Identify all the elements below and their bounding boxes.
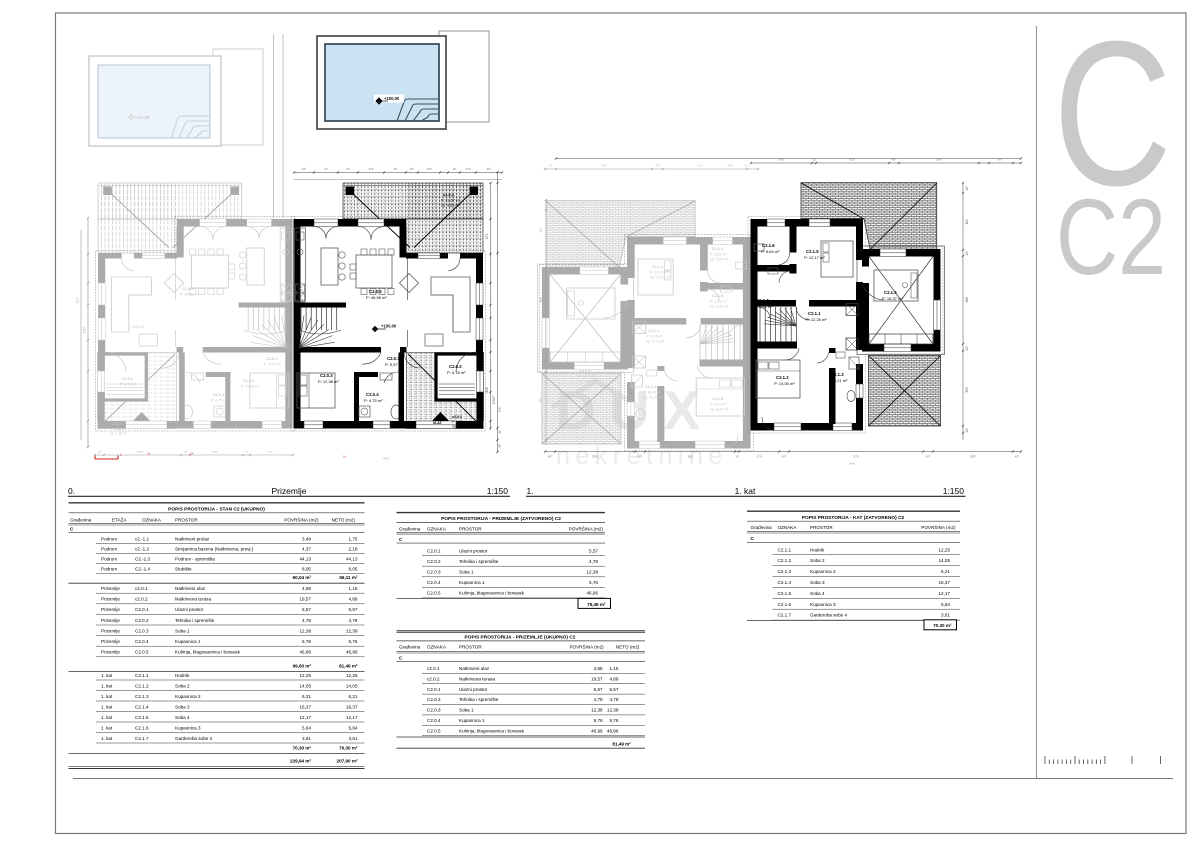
svg-text:1: 1 <box>120 453 122 457</box>
svg-text:5,64: 5,64 <box>941 602 950 607</box>
svg-text:117⁵: 117⁵ <box>76 296 80 303</box>
svg-text:c1.1.1: c1.1.1 <box>580 369 591 373</box>
svg-text:np: 5,64 m²: np: 5,64 m² <box>710 258 729 262</box>
svg-text:c2.0.1: c2.0.1 <box>135 586 148 591</box>
svg-text:Tehnika i spremište: Tehnika i spremište <box>459 697 499 702</box>
svg-text:C2.1.4: C2.1.4 <box>778 580 792 585</box>
svg-text:3,61: 3,61 <box>349 736 358 741</box>
svg-text:P: 3,61 m²: P: 3,61 m² <box>710 300 727 304</box>
svg-text:C1.1.1: C1.1.1 <box>648 329 659 333</box>
svg-text:46,96: 46,96 <box>587 591 599 596</box>
svg-text:826: 826 <box>485 387 489 393</box>
svg-text:+100,00: +100,00 <box>384 96 400 101</box>
svg-text:Soba 1: Soba 1 <box>175 628 190 633</box>
svg-text:Podrum: Podrum <box>101 536 117 541</box>
svg-text:207,90 m²: 207,90 m² <box>337 758 358 763</box>
svg-text:Tehnika i spremište: Tehnika i spremište <box>459 559 499 564</box>
svg-text:Prizemlje: Prizemlje <box>101 597 120 602</box>
svg-text:Prizemlje: Prizemlje <box>101 639 120 644</box>
svg-text:42⁵: 42⁵ <box>1015 455 1020 459</box>
svg-text:P: 16,42 m²: P: 16,42 m² <box>643 391 662 395</box>
svg-text:c2.0.2: c2.0.2 <box>427 676 440 681</box>
svg-text:12,38: 12,38 <box>587 569 599 574</box>
svg-text:P: 9,24 m²: P: 9,24 m² <box>646 335 663 339</box>
svg-text:Podrum: Podrum <box>101 546 117 551</box>
svg-text:81,49 m²: 81,49 m² <box>339 664 358 669</box>
svg-text:3,61: 3,61 <box>302 736 311 741</box>
svg-text:4,37: 4,37 <box>302 546 311 551</box>
svg-text:1. kat: 1. kat <box>101 704 113 709</box>
svg-text:c2.0.1: c2.0.1 <box>452 415 462 419</box>
svg-text:Natkrivena terasa: Natkrivena terasa <box>175 597 211 602</box>
svg-text:C2.1.5: C2.1.5 <box>806 249 819 254</box>
svg-text:229,94 m²: 229,94 m² <box>290 758 311 763</box>
svg-text:P: 4,58 m²: P: 4,58 m² <box>110 427 127 431</box>
svg-text:C2.0.5: C2.0.5 <box>427 728 441 733</box>
svg-text:OZNAKA: OZNAKA <box>427 526 447 531</box>
svg-text:C1.1.6: C1.1.6 <box>712 294 723 298</box>
svg-text:310: 310 <box>849 158 854 162</box>
svg-text:C2.0.1: C2.0.1 <box>427 687 441 692</box>
svg-text:90: 90 <box>498 430 502 434</box>
svg-text:Kupaonica 1: Kupaonica 1 <box>459 580 485 585</box>
svg-text:P: 16,37 m²: P: 16,37 m² <box>882 296 903 301</box>
svg-text:C2.1.3: C2.1.3 <box>831 372 844 377</box>
svg-text:np: 3,96 m²: np: 3,96 m² <box>578 380 597 384</box>
svg-text:Prizemlje: Prizemlje <box>101 650 120 655</box>
svg-text:+100,00: +100,00 <box>381 324 397 329</box>
svg-text:C2.0.5: C2.0.5 <box>135 650 149 655</box>
svg-text:Hodnik: Hodnik <box>810 547 825 552</box>
svg-text:C2.0.2: C2.0.2 <box>135 618 149 623</box>
svg-text:12,38: 12,38 <box>346 628 358 633</box>
svg-text:Natkriveni ulaz: Natkriveni ulaz <box>175 586 206 591</box>
svg-text:ETAŽA: ETAŽA <box>112 515 127 522</box>
svg-text:C2.0.4: C2.0.4 <box>427 580 441 585</box>
svg-text:Stubište: Stubište <box>175 566 192 571</box>
svg-text:5,64: 5,64 <box>302 725 311 730</box>
svg-text:np: 1,15 m²: np: 1,15 m² <box>110 432 128 436</box>
svg-text:1,15: 1,15 <box>349 586 358 591</box>
svg-text:PROSTOR: PROSTOR <box>175 517 198 522</box>
svg-text:C1.0.1: C1.0.1 <box>266 357 277 361</box>
svg-text:Soba 1: Soba 1 <box>459 708 474 713</box>
svg-text:c1.0.1: c1.0.1 <box>112 422 122 426</box>
svg-text:42⁵: 42⁵ <box>98 450 103 454</box>
svg-text:3,61: 3,61 <box>941 613 950 618</box>
svg-text:P: 5,57 m²: P: 5,57 m² <box>264 363 281 367</box>
svg-text:56,11 m²: 56,11 m² <box>339 575 358 580</box>
svg-text:6,21: 6,21 <box>302 694 311 699</box>
svg-text:P: 5,57 m²: P: 5,57 m² <box>385 362 404 367</box>
svg-text:POPIS PROSTORIJA - KAT (ZATVO: POPIS PROSTORIJA - KAT (ZATVORENO) C2 <box>802 515 905 521</box>
svg-text:C2.1.6: C2.1.6 <box>762 243 775 248</box>
svg-text:C2.1.7: C2.1.7 <box>135 736 149 741</box>
svg-text:C1.1.3: C1.1.3 <box>712 247 723 251</box>
svg-text:C2.1.5: C2.1.5 <box>778 591 792 596</box>
svg-text:AAA: AAA <box>849 462 855 466</box>
svg-text:Prizemlje: Prizemlje <box>101 586 120 591</box>
svg-text:C1.0.5: C1.0.5 <box>182 287 193 291</box>
svg-text:245: 245 <box>727 164 732 168</box>
svg-text:POPIS PROSTORIJA - PRIZEMLJE: POPIS PROSTORIJA - PRIZEMLJE (UKUPNO) C2 <box>465 634 576 640</box>
svg-text:P: 15,79 m²: P: 15,79 m² <box>578 375 597 379</box>
svg-text:46,96: 46,96 <box>607 728 619 733</box>
svg-text:0.: 0. <box>68 486 75 496</box>
svg-text:Kupaonica 1: Kupaonica 1 <box>175 639 201 644</box>
svg-text:np: 1,15 m²: np: 1,15 m² <box>452 425 470 429</box>
svg-text:120: 120 <box>498 407 502 412</box>
svg-text:C2.1.4: C2.1.4 <box>135 704 149 709</box>
svg-text:4,78: 4,78 <box>349 618 358 623</box>
svg-text:12,38: 12,38 <box>591 708 603 713</box>
svg-text:Podrum: Podrum <box>101 566 117 571</box>
svg-text:Ulazni prostor: Ulazni prostor <box>459 548 488 553</box>
svg-text:P: 12,17 m²: P: 12,17 m² <box>804 255 825 260</box>
svg-text:np: 16,40 m²: np: 16,40 m² <box>643 396 664 400</box>
svg-text:42⁵: 42⁵ <box>184 450 189 454</box>
svg-text:115: 115 <box>965 219 969 224</box>
svg-text:15: 15 <box>735 455 739 459</box>
svg-text:70,30 m²: 70,30 m² <box>293 746 312 751</box>
svg-text:Garderoba sobe 4: Garderoba sobe 4 <box>175 736 212 741</box>
svg-text:42⁵: 42⁵ <box>998 158 1003 162</box>
svg-text:60,04 m²: 60,04 m² <box>293 575 312 580</box>
svg-text:POVRŠINA (m2): POVRŠINA (m2) <box>284 516 319 522</box>
svg-text:C2.1.3: C2.1.3 <box>135 694 149 699</box>
svg-text:POVRŠINA (m2): POVRŠINA (m2) <box>569 525 604 531</box>
svg-text:352: 352 <box>965 387 969 393</box>
svg-text:Soba 4: Soba 4 <box>810 591 825 596</box>
svg-text:5,76: 5,76 <box>609 718 618 723</box>
svg-text:4,78: 4,78 <box>594 697 603 702</box>
svg-text:C2.-1.3: C2.-1.3 <box>135 556 151 561</box>
svg-text:15: 15 <box>812 158 816 162</box>
svg-text:1. kat: 1. kat <box>101 694 113 699</box>
svg-text:157¹: 157¹ <box>485 233 489 239</box>
svg-text:70.30 m²: 70.30 m² <box>933 623 952 628</box>
svg-text:5,57: 5,57 <box>349 607 358 612</box>
svg-text:12,38: 12,38 <box>607 708 619 713</box>
svg-text:1:150: 1:150 <box>487 486 509 496</box>
svg-text:46,96: 46,96 <box>346 650 358 655</box>
svg-text:C2.0.1: C2.0.1 <box>427 548 441 553</box>
svg-text:AAA: AAA <box>383 457 389 461</box>
svg-text:81,49 m²: 81,49 m² <box>612 741 631 746</box>
svg-text:P: 4,75 m²: P: 4,75 m² <box>211 399 228 403</box>
svg-text:C2.1.1: C2.1.1 <box>135 673 149 678</box>
svg-text:C2.0.4: C2.0.4 <box>427 718 441 723</box>
svg-text:P: 4,58 m²: P: 4,58 m² <box>452 420 469 424</box>
svg-text:Građevina: Građevina <box>751 525 773 530</box>
svg-text:POPIS PROSTORIJA - PRIZEMLJE: POPIS PROSTORIJA - PRIZEMLJE (ZATVORENO)… <box>441 516 561 522</box>
svg-text:339⁵: 339⁵ <box>592 455 599 459</box>
svg-text:1. kat: 1. kat <box>735 486 756 496</box>
svg-text:C2.0.2: C2.0.2 <box>449 364 462 369</box>
svg-text:Natkrivena terasa: Natkrivena terasa <box>459 676 495 681</box>
svg-text:C2.0.5: C2.0.5 <box>369 289 382 294</box>
svg-text:PROSTOR: PROSTOR <box>459 526 482 531</box>
svg-text:12,17: 12,17 <box>346 715 358 720</box>
svg-text:P: 19,57 m²: P: 19,57 m² <box>441 199 461 203</box>
svg-text:170: 170 <box>756 455 761 459</box>
svg-text:4,78: 4,78 <box>302 618 311 623</box>
svg-text:C1.1.5: C1.1.5 <box>712 397 723 401</box>
svg-text:15: 15 <box>452 167 456 171</box>
svg-text:Podrum: Podrum <box>101 556 117 561</box>
svg-text:C2.0.1: C2.0.1 <box>135 607 149 612</box>
svg-text:C2.0.2: C2.0.2 <box>427 559 441 564</box>
svg-text:42⁵: 42⁵ <box>548 455 553 459</box>
svg-text:C2.0.4: C2.0.4 <box>135 639 149 644</box>
svg-text:C2.1.7: C2.1.7 <box>756 298 769 303</box>
svg-text:C2.0.1: C2.0.1 <box>387 356 400 361</box>
svg-text:42⁵: 42⁵ <box>892 158 897 162</box>
svg-text:Natkriveni ulaz: Natkriveni ulaz <box>459 666 490 671</box>
svg-text:Prizemlje: Prizemlje <box>272 486 307 496</box>
svg-text:99,60 m²: 99,60 m² <box>293 664 312 669</box>
svg-text:POVRŠINA (m2): POVRŠINA (m2) <box>921 524 956 530</box>
svg-text:42⁵: 42⁵ <box>965 250 969 256</box>
svg-text:70,30 m²: 70,30 m² <box>339 746 358 751</box>
svg-text:Kupaonica 3: Kupaonica 3 <box>175 725 201 730</box>
svg-text:42⁵: 42⁵ <box>782 455 787 459</box>
svg-text:Prizemlje: Prizemlje <box>101 618 120 623</box>
svg-text:Soba 1: Soba 1 <box>459 569 474 574</box>
svg-text:np: 4,89 m²: np: 4,89 m² <box>441 204 460 208</box>
svg-text:42⁵: 42⁵ <box>549 164 554 168</box>
svg-text:12,25: 12,25 <box>346 673 358 678</box>
svg-text:310: 310 <box>368 167 373 171</box>
svg-text:c2.-1.2: c2.-1.2 <box>135 546 149 551</box>
svg-text:1. kat: 1. kat <box>101 673 113 678</box>
svg-text:90: 90 <box>498 444 502 448</box>
svg-text:1702⁵: 1702⁵ <box>492 395 496 404</box>
svg-text:5,57: 5,57 <box>302 607 311 612</box>
svg-text:339⁵: 339⁵ <box>936 158 943 162</box>
svg-text:5,76: 5,76 <box>302 639 311 644</box>
svg-text:POVRŠINA (m2): POVRŠINA (m2) <box>569 644 604 650</box>
svg-text:42⁵: 42⁵ <box>656 164 661 168</box>
svg-text:12,25: 12,25 <box>939 547 951 552</box>
svg-text:5,76: 5,76 <box>589 580 598 585</box>
svg-text:c2.0.2: c2.0.2 <box>443 192 455 197</box>
svg-text:6,21: 6,21 <box>941 569 950 574</box>
svg-text:PROSTOR: PROSTOR <box>810 525 833 530</box>
svg-text:C2.0.3: C2.0.3 <box>427 569 441 574</box>
svg-text:468: 468 <box>539 297 543 303</box>
svg-text:C1.1.2: C1.1.2 <box>645 385 656 389</box>
svg-text:C2.0.5: C2.0.5 <box>427 591 441 596</box>
svg-text:c2.-1.1: c2.-1.1 <box>135 536 149 541</box>
svg-text:1. kat: 1. kat <box>101 736 113 741</box>
svg-text:np: 3,61 m²: np: 3,61 m² <box>710 305 729 309</box>
svg-text:42⁵: 42⁵ <box>926 455 931 459</box>
svg-text:2,18: 2,18 <box>349 546 358 551</box>
svg-text:P: 4,78 m²: P: 4,78 m² <box>120 383 137 387</box>
svg-text:C1.0.4: C1.0.4 <box>213 393 225 397</box>
svg-text:C2.0.3: C2.0.3 <box>320 373 333 378</box>
svg-text:Soba 3: Soba 3 <box>175 704 190 709</box>
svg-text:5,76: 5,76 <box>594 718 603 723</box>
svg-text:Hodnik: Hodnik <box>175 673 190 678</box>
svg-text:Građevina: Građevina <box>70 517 92 522</box>
svg-text:380: 380 <box>212 450 217 454</box>
svg-text:24: 24 <box>324 167 328 171</box>
svg-text:Ulazni prostor: Ulazni prostor <box>175 607 204 612</box>
svg-text:5,57: 5,57 <box>609 687 618 692</box>
svg-text:Kuhinja, blagovaonica i borava: Kuhinja, blagovaonica i boravak <box>459 591 525 596</box>
svg-text:380: 380 <box>687 455 692 459</box>
svg-text:Soba 2: Soba 2 <box>810 558 825 563</box>
svg-text:339⁵: 339⁵ <box>601 164 608 168</box>
svg-text:Prizemlje: Prizemlje <box>101 607 120 612</box>
svg-text:42⁵: 42⁵ <box>487 167 492 171</box>
svg-text:+101,00: +101,00 <box>134 115 150 120</box>
svg-text:339⁵: 339⁵ <box>137 450 144 454</box>
svg-text:468: 468 <box>965 297 969 303</box>
svg-text:310: 310 <box>697 164 702 168</box>
svg-text:Strojarnica bazena (Natkrivena: Strojarnica bazena (Natkrivena, provj.) <box>175 546 254 551</box>
svg-text:Građevina: Građevina <box>399 645 421 650</box>
svg-text:12,17: 12,17 <box>300 715 312 720</box>
svg-text:14,05: 14,05 <box>300 683 312 688</box>
svg-text:1.: 1. <box>527 486 534 496</box>
svg-text:170: 170 <box>267 450 272 454</box>
svg-text:Soba 3: Soba 3 <box>810 580 825 585</box>
svg-text:C1.0.3: C1.0.3 <box>243 379 254 383</box>
svg-text:42⁵: 42⁵ <box>965 185 969 191</box>
svg-text:Kupaonica 3: Kupaonica 3 <box>810 602 836 607</box>
svg-text:15: 15 <box>393 167 397 171</box>
svg-text:Prizemlje: Prizemlje <box>101 628 120 633</box>
svg-text:c2.0.2: c2.0.2 <box>135 597 148 602</box>
svg-text:C2.0.2: C2.0.2 <box>427 697 441 702</box>
svg-text:8,05: 8,05 <box>302 566 311 571</box>
svg-text:Ulazni prostor: Ulazni prostor <box>459 687 488 692</box>
svg-text:Kupaonica 2: Kupaonica 2 <box>810 569 836 574</box>
svg-text:4,58: 4,58 <box>594 666 603 671</box>
svg-text:P: 5,64 m²: P: 5,64 m² <box>761 249 780 254</box>
svg-text:Kuhinja, blagovaonica i borava: Kuhinja, blagovaonica i boravak <box>459 728 525 733</box>
svg-text:15: 15 <box>245 450 249 454</box>
svg-text:C2.1.6: C2.1.6 <box>135 725 149 730</box>
svg-text:P: 12,25 m²: P: 12,25 m² <box>806 317 827 322</box>
svg-text:C2.1.1: C2.1.1 <box>778 547 792 552</box>
svg-text:5,76: 5,76 <box>349 639 358 644</box>
svg-text:Tehnika i spremište: Tehnika i spremište <box>175 618 215 623</box>
svg-text:42⁵: 42⁵ <box>410 167 415 171</box>
svg-text:C2.-1.4: C2.-1.4 <box>135 566 151 571</box>
svg-text:np: 9,24 m²: np: 9,24 m² <box>646 340 665 344</box>
svg-text:245: 245 <box>778 158 783 162</box>
svg-text:14,05: 14,05 <box>939 558 951 563</box>
svg-text:C2.0.3: C2.0.3 <box>135 628 149 633</box>
svg-text:75,45 m²: 75,45 m² <box>587 602 606 607</box>
svg-text:C2.1.2: C2.1.2 <box>778 558 792 563</box>
svg-text:C2.1.7: C2.1.7 <box>778 613 792 618</box>
svg-text:42⁵: 42⁵ <box>965 345 969 351</box>
svg-text:ULAZ: ULAZ <box>433 421 442 425</box>
svg-text:4,78: 4,78 <box>609 697 618 702</box>
svg-text:42⁵: 42⁵ <box>302 167 307 171</box>
svg-text:339⁵: 339⁵ <box>970 455 977 459</box>
svg-text:4,89: 4,89 <box>609 676 618 681</box>
svg-text:1. kat: 1. kat <box>101 715 113 720</box>
svg-text:6,21: 6,21 <box>349 694 358 699</box>
svg-text:P: 5,66 m²: P: 5,66 m² <box>710 253 727 257</box>
svg-text:16,37: 16,37 <box>939 580 951 585</box>
svg-text:8,05: 8,05 <box>349 566 358 571</box>
svg-text:16,37: 16,37 <box>300 704 312 709</box>
svg-text:P: 6,21 m²: P: 6,21 m² <box>829 378 848 383</box>
svg-text:C2.0.4: C2.0.4 <box>366 392 379 397</box>
svg-text:19,57: 19,57 <box>591 676 603 681</box>
svg-text:P: 46,96 m²: P: 46,96 m² <box>366 295 387 300</box>
svg-text:C2.1.6: C2.1.6 <box>778 602 792 607</box>
svg-text:Garderoba sobe 4: Garderoba sobe 4 <box>810 613 847 618</box>
svg-text:P: 6,91 m²: P: 6,91 m² <box>710 403 727 407</box>
svg-text:Soba 2: Soba 2 <box>175 683 190 688</box>
svg-text:4,89: 4,89 <box>349 597 358 602</box>
svg-text:Natkriveni prolaz: Natkriveni prolaz <box>175 536 210 541</box>
svg-text:4,58: 4,58 <box>302 586 311 591</box>
svg-text:P: 46,96 m²: P: 46,96 m² <box>180 293 199 297</box>
svg-text:20: 20 <box>346 167 350 171</box>
svg-text:P: 14,05 m²: P: 14,05 m² <box>774 381 795 386</box>
svg-text:Kupaonica 1: Kupaonica 1 <box>459 718 485 723</box>
svg-text:C1.0.2: C1.0.2 <box>122 377 133 381</box>
svg-text:P: 3,61 m²: P: 3,61 m² <box>754 304 773 309</box>
svg-text:P: 12,38 m²: P: 12,38 m² <box>318 379 339 384</box>
svg-text:OZNAKA: OZNAKA <box>427 645 447 650</box>
svg-text:1:150: 1:150 <box>943 486 965 496</box>
svg-text:5,57: 5,57 <box>589 548 598 553</box>
svg-text:12,38: 12,38 <box>300 628 312 633</box>
svg-text:46,96: 46,96 <box>591 728 603 733</box>
svg-text:14,05: 14,05 <box>346 683 358 688</box>
svg-text:C2.0.3: C2.0.3 <box>427 708 441 713</box>
svg-text:44,13: 44,13 <box>346 556 358 561</box>
svg-text:16,37: 16,37 <box>346 704 358 709</box>
svg-text:OZNAKA: OZNAKA <box>778 525 798 530</box>
svg-text:15: 15 <box>744 164 748 168</box>
svg-text:1. kat: 1. kat <box>101 683 113 688</box>
svg-text:245: 245 <box>426 167 431 171</box>
svg-text:C2.1.3: C2.1.3 <box>778 569 792 574</box>
svg-text:1,15: 1,15 <box>609 666 618 671</box>
svg-text:12,17: 12,17 <box>939 591 951 596</box>
svg-text:C2.1.2: C2.1.2 <box>135 683 149 688</box>
svg-text:352: 352 <box>539 397 543 403</box>
svg-text:42⁵: 42⁵ <box>638 455 643 459</box>
svg-text:np: 6,91 m²: np: 6,91 m² <box>710 408 729 412</box>
svg-text:Podrum - spremište: Podrum - spremište <box>175 556 216 561</box>
svg-text:P: 12,38 m²: P: 12,38 m² <box>241 385 260 389</box>
svg-text:NETO (m2): NETO (m2) <box>332 517 356 522</box>
svg-text:1. kat: 1. kat <box>101 725 113 730</box>
svg-text:12,25: 12,25 <box>300 673 312 678</box>
svg-text:np: 12,15 m²: np: 12,15 m² <box>650 276 671 280</box>
svg-text:5,64: 5,64 <box>349 725 358 730</box>
svg-text:5,57: 5,57 <box>594 687 603 692</box>
svg-text:+101,00: +101,00 <box>130 325 144 329</box>
svg-text:C2.1.1: C2.1.1 <box>808 311 821 316</box>
svg-text:P: 4,75 m²: P: 4,75 m² <box>364 398 383 403</box>
svg-text:Soba 4: Soba 4 <box>175 715 190 720</box>
svg-text:1317: 1317 <box>83 326 87 333</box>
svg-text:570: 570 <box>853 455 858 459</box>
